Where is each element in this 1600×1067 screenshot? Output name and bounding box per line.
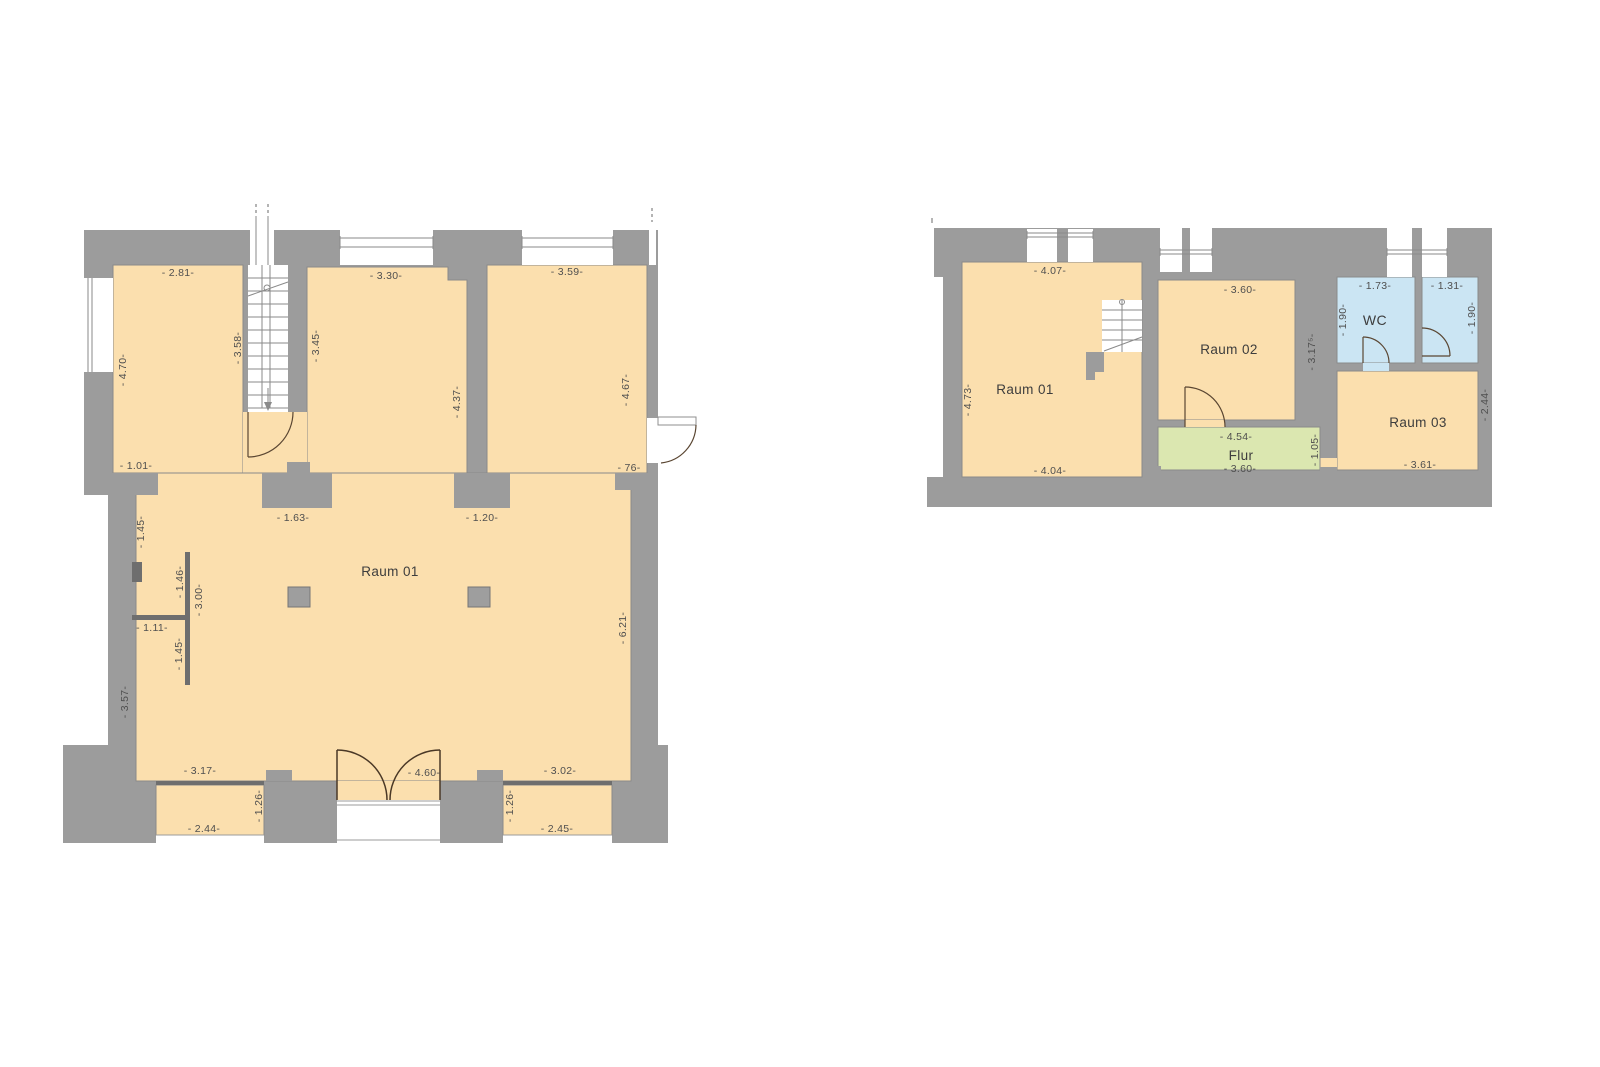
room-label-flur: Flur (1229, 448, 1254, 463)
dim-label: - 2.44- (1479, 389, 1491, 422)
pier-1 (262, 473, 332, 508)
left-room-middle-floor (307, 267, 467, 473)
floor-plan-sheet: - 2.81- - 3.30- - 3.59- - 4.70- - 3.58- … (0, 0, 1600, 1067)
room-label-raum03: Raum 03 (1389, 415, 1447, 430)
bottom-pier-bump-right (477, 770, 503, 781)
dim-label: - 3.58- (232, 332, 244, 365)
dim-label: - 1.26- (253, 790, 265, 823)
dim-label: - 3.59- (551, 266, 584, 278)
dim-label: - 2.81- (162, 267, 195, 279)
dim-label: - 4.07- (1034, 265, 1067, 277)
dim-label: - 3.60- (1224, 284, 1257, 296)
dim-label: - 1.01- (120, 460, 153, 472)
dim-label: - 1.46- (174, 566, 186, 599)
alcove-left-sill (156, 835, 264, 843)
dim-label: - 4.60- (408, 767, 441, 779)
raum02-door-opening (1185, 420, 1225, 427)
dim-label: - 6.21- (617, 612, 629, 645)
dim-label: - 3.45- (310, 330, 322, 363)
right-raum01-floor (962, 262, 1142, 477)
room-label-raum01-left: Raum 01 (361, 564, 419, 579)
wc-door-opening (1363, 363, 1389, 371)
dim-label: - 1.31- (1431, 280, 1464, 292)
left-floor-plan: - 2.81- - 3.30- - 3.59- - 4.70- - 3.58- … (63, 204, 696, 843)
dim-label: - 4.54- (1220, 431, 1253, 443)
flur-threshold-right (1320, 467, 1337, 477)
wall-tongue-left (84, 473, 158, 495)
window-r3b (1422, 228, 1447, 277)
right-floor-plan: - 4.07- - 4.73- Raum 01 - 4.04- - 3.60- … (927, 218, 1492, 507)
pier-2 (454, 473, 510, 508)
dim-label: - 1.26- (504, 790, 516, 823)
dim-label: - 1.90- (1337, 304, 1349, 337)
flur-threshold-left (1147, 466, 1161, 477)
dim-label: - 3.30- (370, 270, 403, 282)
dim-label: - 4.67- (620, 374, 632, 407)
dim-label: - 1.73- (1359, 280, 1392, 292)
room-label-wc: WC (1363, 312, 1387, 328)
window-r1b (1068, 229, 1093, 262)
left-room-right-floor (487, 265, 647, 473)
dim-label: - 3.17⁵- (1306, 333, 1318, 370)
column-1 (288, 587, 310, 607)
dim-label: - 76- (617, 462, 640, 474)
dim-label: - 3.02- (544, 765, 577, 777)
dim-label: - 4.37- (451, 386, 463, 419)
dim-label: - 3.60- (1224, 463, 1257, 475)
partition-wall-horizontal (132, 615, 190, 620)
alcove-left-lintel (156, 781, 264, 785)
room-label-raum01-right: Raum 01 (996, 382, 1054, 397)
dim-label: - 2.44- (188, 823, 221, 835)
dim-label: - 3.61- (1404, 459, 1437, 471)
dim-label: - 4.73- (962, 384, 974, 417)
dim-label: - 1.63- (277, 512, 310, 524)
window-r3a (1387, 228, 1412, 277)
chimney-shaft (250, 216, 274, 265)
dim-label: - 3.57- (119, 686, 131, 719)
window-r1a (1027, 229, 1057, 262)
right-wall-step (615, 473, 658, 490)
left-room-topleft-floor (113, 265, 243, 473)
dim-label: - 1.11- (136, 622, 168, 634)
dim-label: - 2.45- (541, 823, 574, 835)
pier-1-notch (287, 462, 310, 473)
dim-label: - 3.00- (193, 584, 205, 617)
dim-label: - 1.45- (135, 516, 147, 549)
bottom-pier-bump-left (266, 770, 292, 781)
wall-bump (132, 562, 142, 582)
dim-label: - 4.70- (117, 354, 129, 387)
door-right-opening (647, 418, 658, 463)
left-main-room-floor (136, 473, 631, 781)
dim-label: - 1.05- (1309, 434, 1321, 467)
room-label-raum02: Raum 02 (1200, 342, 1258, 357)
corner-shaft-slot (649, 222, 656, 265)
dim-label: - 3.17- (184, 765, 217, 777)
floor-plan-drawing: - 2.81- - 3.30- - 3.59- - 4.70- - 3.58- … (0, 0, 1600, 1067)
flur-raum03-opening (1320, 458, 1337, 467)
column-2 (468, 587, 490, 607)
dim-label: - 1.45- (173, 638, 185, 671)
side-exit-door (658, 417, 696, 463)
dim-label: - 1.20- (466, 512, 499, 524)
entrance-vestibule (337, 800, 440, 843)
alcove-right-sill (503, 835, 612, 843)
alcove-right-lintel (503, 781, 612, 785)
entrance-recess-floor (337, 781, 440, 800)
dim-label: - 4.04- (1034, 465, 1067, 477)
dim-label: - 1.90- (1466, 302, 1478, 335)
